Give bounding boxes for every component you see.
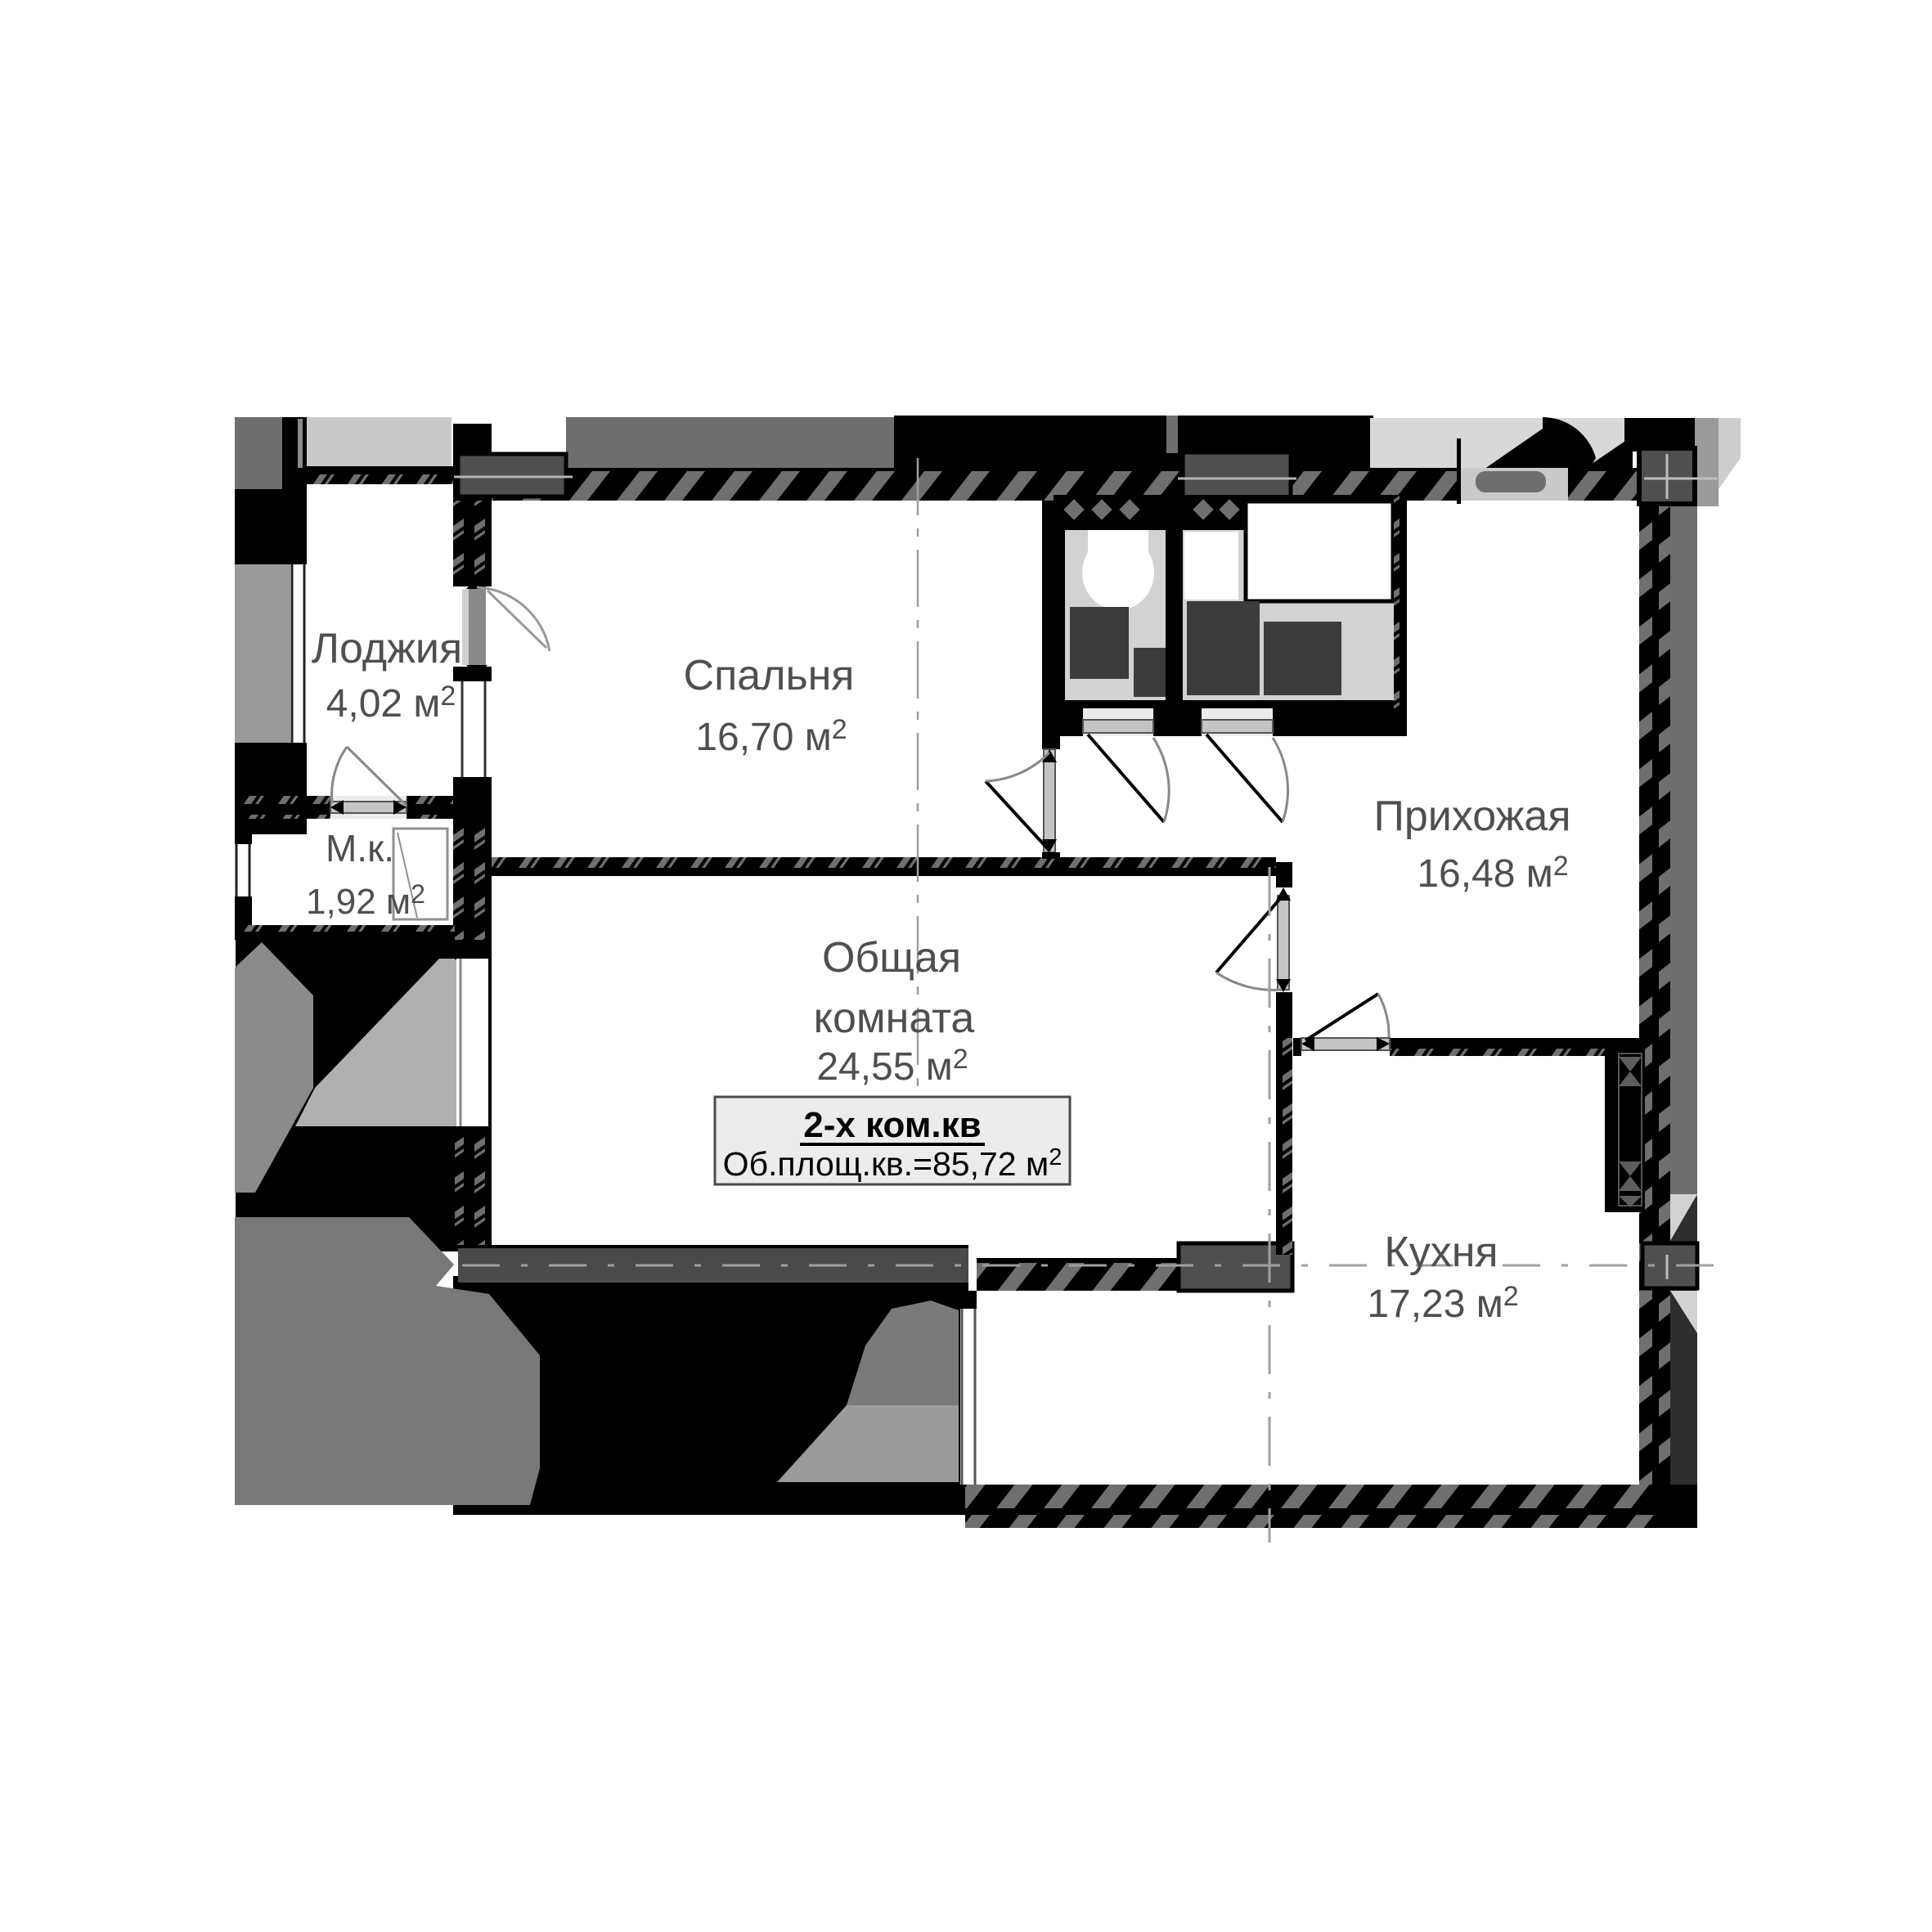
svg-text:2-х ком.кв: 2-х ком.кв: [803, 1105, 981, 1145]
svg-text:Общая: Общая: [822, 934, 961, 982]
svg-text:4,02 м2: 4,02 м2: [326, 681, 456, 726]
svg-text:16,70 м2: 16,70 м2: [695, 714, 847, 759]
svg-text:Спальня: Спальня: [684, 652, 855, 699]
svg-text:24,55 м2: 24,55 м2: [816, 1044, 968, 1089]
svg-text:М.к.: М.к.: [326, 827, 394, 869]
svg-text:16,48 м2: 16,48 м2: [1417, 851, 1568, 896]
svg-text:Прихожая: Прихожая: [1374, 793, 1571, 840]
svg-text:17,23 м2: 17,23 м2: [1367, 1281, 1518, 1326]
svg-text:Об.площ.кв.=85,72 м2: Об.площ.кв.=85,72 м2: [723, 1144, 1063, 1183]
svg-text:Лоджия: Лоджия: [312, 625, 462, 672]
svg-text:1,92 м2: 1,92 м2: [306, 879, 425, 922]
svg-text:Кухня: Кухня: [1384, 1229, 1498, 1276]
svg-text:комната: комната: [814, 995, 975, 1042]
